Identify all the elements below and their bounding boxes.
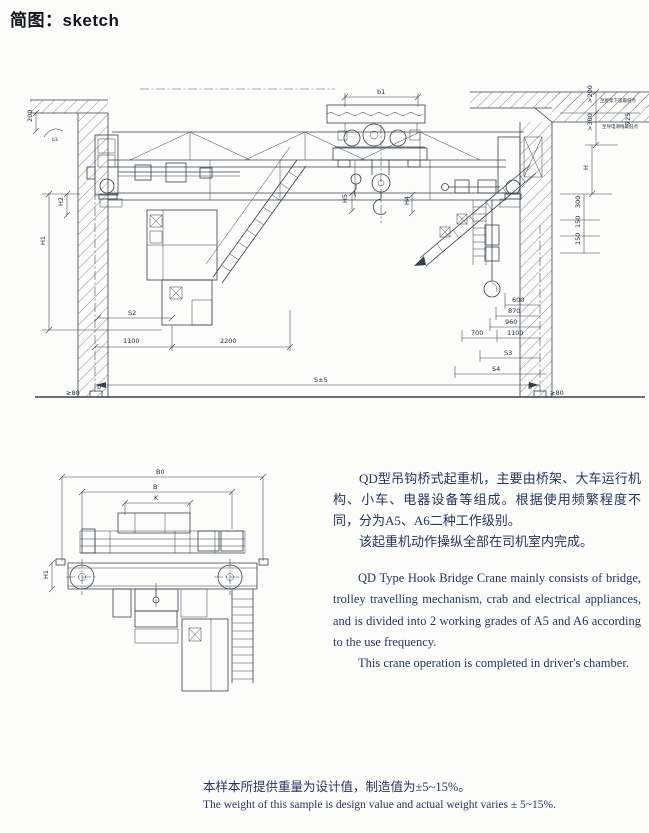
dim-725-label: 725 xyxy=(624,113,632,125)
dim-1100r-label: 1100 xyxy=(507,329,524,337)
side-trolley xyxy=(80,513,245,553)
bridge-girder xyxy=(108,132,524,200)
description-en-2: This crane operation is completed in dri… xyxy=(333,653,641,674)
side-ladder xyxy=(232,589,253,683)
dim-span-label: S±5 xyxy=(314,376,328,384)
dim-H-label: H xyxy=(582,165,590,170)
dim-150a-label: 150 xyxy=(574,216,582,228)
dim-b1-label: b1 xyxy=(377,88,385,96)
footer-note-en: The weight of this sample is design valu… xyxy=(203,797,643,815)
trolley-crab xyxy=(333,123,427,167)
dim-ge80-right-label: ≥80 xyxy=(550,389,564,397)
dim-200-label: 200 xyxy=(26,110,34,122)
dim-b0-label: B0 xyxy=(156,468,165,476)
dim-870-label: 870 xyxy=(508,307,520,315)
dim-gt300-label: >300 xyxy=(586,113,594,131)
page-title: 简图：sketch xyxy=(10,6,119,31)
description-en-1: QD Type Hook Bridge Crane mainly consist… xyxy=(333,568,641,653)
description-block: QD型吊钩桥式起重机，主要由桥架、大车运行机构、小车、电器设备等组成。根据使用频… xyxy=(333,468,641,674)
side-end-carriage: H1 xyxy=(42,559,268,595)
front-elevation-drawing: b1 H5 H4 xyxy=(0,75,649,437)
dim-ge80-left-label: ≥80 xyxy=(66,389,80,397)
span-dimension: S±5 ≥80 b b ≥80 xyxy=(66,376,564,397)
catalog-page: { "page": { "title": "简图：sketch" }, "des… xyxy=(0,0,649,833)
dim-s4-label: S4 xyxy=(492,365,500,373)
side-hoist-machinery xyxy=(113,583,207,643)
dim-h1-side-label: H1 xyxy=(42,570,50,579)
dim-b-label: B xyxy=(153,483,157,491)
dim-h1-label: H1 xyxy=(39,236,47,245)
dim-b-left-label: b xyxy=(97,383,101,391)
dim-150b-label: 150 xyxy=(574,233,582,245)
dim-h2-label: H2 xyxy=(57,197,65,206)
dim-s2-label: S2 xyxy=(128,309,136,317)
description-zh-1: QD型吊钩桥式起重机，主要由桥架、大车运行机构、小车、电器设备等组成。根据使用频… xyxy=(333,468,641,531)
paragraph-gap xyxy=(333,552,641,568)
dim-960-label: 960 xyxy=(505,318,517,326)
dim-k-label: K xyxy=(154,494,159,502)
roof-beam-over-trolley: b1 xyxy=(327,88,425,123)
dim-s3-label: S3 xyxy=(504,349,512,357)
left-building-structure xyxy=(30,89,335,397)
side-view-drawing: B0 B K xyxy=(25,455,315,720)
note-roof-clearance: 至屋架下弦最低点 xyxy=(600,97,636,104)
dim-600-label: 600 xyxy=(512,296,524,304)
footer-note: 本样本所提供重量为设计值，制造值为±5~15%。 The weight of t… xyxy=(203,778,643,815)
dim-1100-label: 1100 xyxy=(123,337,140,345)
dim-h4-label: H4 xyxy=(403,196,411,205)
right-staircase xyxy=(414,165,536,266)
side-top-dimensions: B0 B K xyxy=(59,468,266,561)
note-wire-clearance: 至导电滑线最低点 xyxy=(602,123,638,130)
right-building-structure xyxy=(470,92,649,397)
drivers-cab xyxy=(147,210,217,325)
travel-drive-shaft xyxy=(118,163,240,182)
dim-b-right-label: b xyxy=(528,383,532,391)
dim-h5-label: H5 xyxy=(341,194,349,203)
dim-b3-label: b3 xyxy=(52,137,58,143)
dim-300-label: 300 xyxy=(574,196,582,208)
footer-note-zh: 本样本所提供重量为设计值，制造值为±5~15%。 xyxy=(203,778,643,797)
description-zh-2: 该起重机动作操纵全部在司机室内完成。 xyxy=(333,531,641,552)
dim-2200-label: 2200 xyxy=(220,337,237,345)
dim-700-label: 700 xyxy=(471,329,483,337)
side-cab xyxy=(182,619,228,691)
access-ladder xyxy=(473,200,486,265)
dim-gt200-label: >200 xyxy=(586,85,594,103)
